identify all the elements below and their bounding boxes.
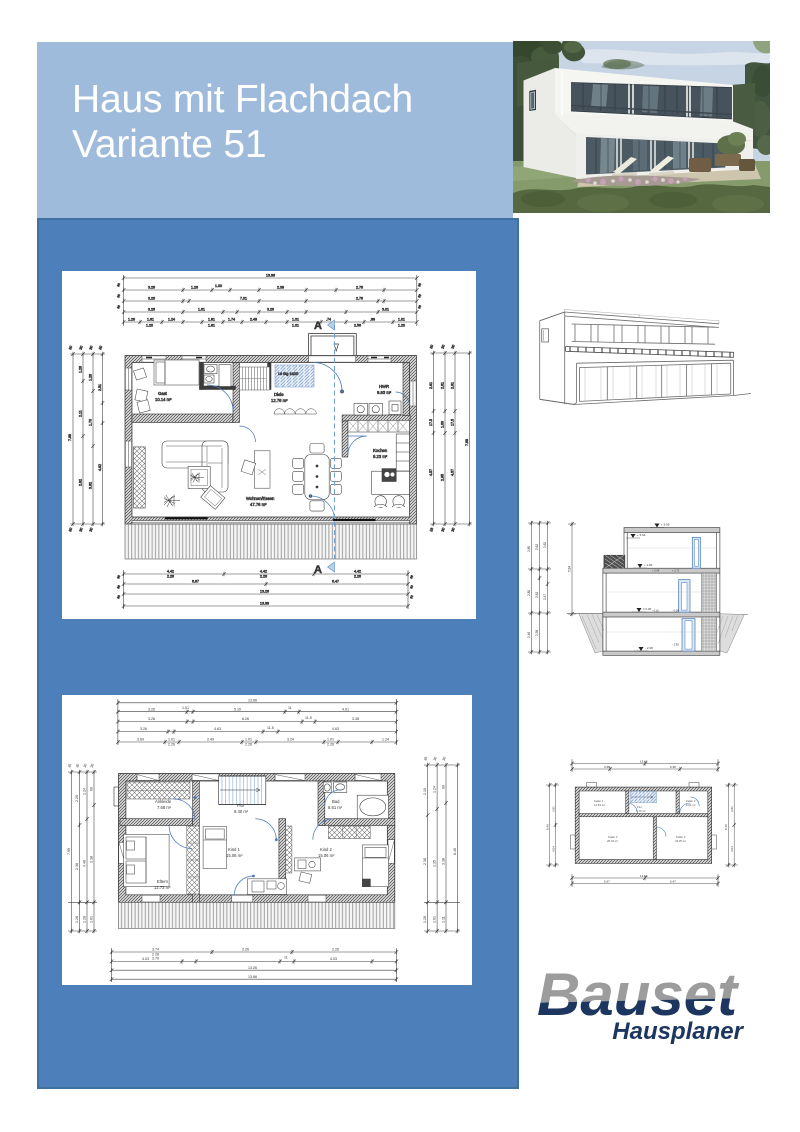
svg-text:30: 30 <box>441 527 446 532</box>
svg-text:1.60: 1.60 <box>441 421 445 428</box>
svg-text:28.02 m²: 28.02 m² <box>607 839 618 843</box>
svg-text:3.38: 3.38 <box>352 717 359 721</box>
svg-text:3.38: 3.38 <box>90 856 94 863</box>
svg-text:+ 2.64: + 2.64 <box>652 569 660 573</box>
svg-text:15.06 m²: 15.06 m² <box>226 853 243 858</box>
svg-text:30: 30 <box>98 345 103 350</box>
svg-text:2.80: 2.80 <box>527 546 531 552</box>
svg-text:2.56: 2.56 <box>354 323 361 327</box>
svg-text:- 2.58: - 2.58 <box>672 643 679 647</box>
svg-text:2.80: 2.80 <box>527 590 531 596</box>
svg-text:17.5: 17.5 <box>451 419 455 426</box>
svg-text:2.26: 2.26 <box>260 574 267 578</box>
svg-text:30: 30 <box>451 344 456 349</box>
svg-text:13.26: 13.26 <box>260 590 269 594</box>
svg-text:36: 36 <box>116 594 121 599</box>
svg-text:3.26: 3.26 <box>148 286 155 290</box>
svg-text:1.28: 1.28 <box>75 916 79 923</box>
svg-text:60: 60 <box>90 787 94 791</box>
svg-text:11: 11 <box>288 706 292 710</box>
svg-text:8.46: 8.46 <box>545 824 549 830</box>
svg-text:13.66: 13.66 <box>640 874 648 878</box>
svg-text:9.40 m²: 9.40 m² <box>234 809 249 814</box>
svg-text:4.42: 4.42 <box>260 570 267 574</box>
svg-text:Wohnen/Essen: Wohnen/Essen <box>246 496 275 501</box>
svg-text:1.24: 1.24 <box>382 738 389 742</box>
svg-text:17.5: 17.5 <box>429 419 433 426</box>
svg-text:30: 30 <box>83 763 88 768</box>
svg-text:5.10: 5.10 <box>234 707 241 711</box>
svg-text:4.04: 4.04 <box>551 846 555 852</box>
svg-text:+ 2.84: + 2.84 <box>644 563 653 567</box>
svg-text:1.24: 1.24 <box>433 786 437 793</box>
svg-text:3.24: 3.24 <box>287 738 294 742</box>
svg-text:1.11: 1.11 <box>442 916 446 923</box>
svg-text:2.26: 2.26 <box>75 795 79 802</box>
svg-text:60: 60 <box>442 785 446 789</box>
svg-text:2.26: 2.26 <box>168 742 175 746</box>
svg-text:1.26: 1.26 <box>79 366 83 373</box>
svg-text:30: 30 <box>79 527 84 532</box>
svg-text:11.5: 11.5 <box>267 726 274 730</box>
svg-text:3.26: 3.26 <box>267 308 274 312</box>
svg-text:6.67: 6.67 <box>604 879 610 883</box>
svg-text:2.61: 2.61 <box>429 382 433 389</box>
svg-text:Gast: Gast <box>158 391 168 396</box>
svg-text:10.14 m²: 10.14 m² <box>155 397 172 402</box>
svg-text:1.74: 1.74 <box>228 318 235 322</box>
svg-text:Eltern: Eltern <box>157 879 169 884</box>
svg-text:2.38: 2.38 <box>423 858 427 865</box>
svg-text:12.76 m²: 12.76 m² <box>271 398 288 403</box>
svg-text:3.26: 3.26 <box>148 308 155 312</box>
svg-text:30: 30 <box>429 344 434 349</box>
svg-text:36: 36 <box>116 304 121 309</box>
svg-text:1.61: 1.61 <box>198 308 205 312</box>
svg-text:6.67: 6.67 <box>192 580 199 584</box>
svg-text:6.47: 6.47 <box>332 580 339 584</box>
svg-text:1.01: 1.01 <box>327 738 334 742</box>
svg-text:14.81 m²: 14.81 m² <box>594 803 605 807</box>
svg-text:36: 36 <box>67 763 72 768</box>
svg-text:8.46: 8.46 <box>724 824 728 830</box>
svg-text:4.03: 4.03 <box>330 957 337 961</box>
svg-text:2.92: 2.92 <box>79 479 83 486</box>
svg-text:- 0.08: - 0.08 <box>672 609 679 613</box>
svg-text:Bad: Bad <box>332 799 340 804</box>
svg-text:1.01: 1.01 <box>292 323 299 327</box>
svg-text:1.01: 1.01 <box>398 318 405 322</box>
svg-text:2.76: 2.76 <box>356 297 363 301</box>
svg-text:1.24: 1.24 <box>83 788 87 795</box>
svg-text:Flur: Flur <box>237 803 245 808</box>
svg-text:.99: .99 <box>370 318 375 322</box>
svg-text:24.35 m²: 24.35 m² <box>675 839 686 843</box>
svg-text:2.51: 2.51 <box>98 384 102 391</box>
svg-text:36: 36 <box>417 282 422 287</box>
svg-text:8.61 m²: 8.61 m² <box>686 803 696 807</box>
svg-text:2.26: 2.26 <box>245 742 252 746</box>
svg-text:2.49: 2.49 <box>250 318 257 322</box>
svg-text:± 0.00: ± 0.00 <box>643 607 652 611</box>
svg-text:1.81: 1.81 <box>208 318 215 322</box>
svg-text:13.99: 13.99 <box>266 274 275 278</box>
svg-text:36: 36 <box>116 574 121 579</box>
svg-text:2.26: 2.26 <box>242 948 249 952</box>
svg-text:1.28: 1.28 <box>83 916 87 923</box>
svg-text:4.04: 4.04 <box>730 846 734 852</box>
svg-text:3.26: 3.26 <box>148 717 155 721</box>
svg-text:1.26: 1.26 <box>89 374 93 381</box>
svg-text:12.73 m²: 12.73 m² <box>154 885 171 890</box>
svg-text:30: 30 <box>75 763 80 768</box>
svg-text:7.68 m²: 7.68 m² <box>157 805 172 810</box>
svg-text:13.66: 13.66 <box>640 759 648 763</box>
svg-text:1.28: 1.28 <box>423 916 427 923</box>
svg-text:1.01: 1.01 <box>168 738 175 742</box>
svg-text:A: A <box>314 320 322 332</box>
svg-text:1.01: 1.01 <box>433 916 437 923</box>
svg-text:11: 11 <box>284 956 288 960</box>
svg-text:30: 30 <box>409 584 414 589</box>
svg-text:2.76: 2.76 <box>356 286 363 290</box>
svg-text:1.01: 1.01 <box>182 706 189 710</box>
svg-text:1.35: 1.35 <box>433 860 437 867</box>
svg-text:6.38: 6.38 <box>604 765 610 769</box>
svg-text:1.81: 1.81 <box>208 323 215 327</box>
svg-text:30: 30 <box>90 763 95 768</box>
svg-text:9.23 m²: 9.23 m² <box>373 454 388 459</box>
svg-text:3.01: 3.01 <box>382 308 389 312</box>
svg-text:1.20: 1.20 <box>398 323 405 327</box>
svg-text:5.70 m²: 5.70 m² <box>636 809 646 813</box>
svg-text:2.26: 2.26 <box>327 742 334 746</box>
svg-text:2.26: 2.26 <box>332 948 339 952</box>
svg-text:HWR: HWR <box>379 384 389 389</box>
svg-text:1.01: 1.01 <box>90 916 94 923</box>
svg-text:1.26: 1.26 <box>191 286 198 290</box>
svg-text:+ 5.95: + 5.95 <box>661 523 670 527</box>
svg-text:4.03: 4.03 <box>142 957 149 961</box>
svg-text:30: 30 <box>409 594 414 599</box>
svg-text:8.61 m²: 8.61 m² <box>328 805 343 810</box>
svg-text:36: 36 <box>116 282 121 287</box>
svg-text:Kind 2: Kind 2 <box>320 847 333 852</box>
svg-text:36: 36 <box>116 584 121 589</box>
svg-text:2.11: 2.11 <box>79 410 83 417</box>
svg-text:4.57: 4.57 <box>451 469 455 476</box>
svg-text:36: 36 <box>409 574 414 579</box>
svg-text:1.81: 1.81 <box>147 318 154 322</box>
svg-text:6.26: 6.26 <box>242 717 249 721</box>
svg-text:+ 2.72: + 2.72 <box>672 569 680 573</box>
svg-text:6.38: 6.38 <box>670 765 676 769</box>
svg-text:30: 30 <box>441 344 446 349</box>
svg-text:30: 30 <box>433 756 438 761</box>
svg-text:3.38: 3.38 <box>442 858 446 865</box>
svg-text:2.38: 2.38 <box>75 863 79 870</box>
svg-text:47.76 m²: 47.76 m² <box>250 502 267 507</box>
svg-text:2.38: 2.38 <box>535 630 539 636</box>
svg-text:3.81: 3.81 <box>551 806 555 812</box>
svg-text:2.62: 2.62 <box>535 592 539 598</box>
svg-text:3.26: 3.26 <box>148 707 155 711</box>
svg-text:4.57: 4.57 <box>429 469 433 476</box>
svg-text:- 0.16: - 0.16 <box>652 609 659 613</box>
svg-text:2.62: 2.62 <box>543 542 547 548</box>
svg-text:4.63: 4.63 <box>332 727 339 731</box>
svg-text:7.99: 7.99 <box>67 848 71 855</box>
svg-text:3.26: 3.26 <box>140 727 147 731</box>
svg-text:2.61: 2.61 <box>451 382 455 389</box>
svg-text:9.93 m²: 9.93 m² <box>377 390 392 395</box>
svg-text:.74: .74 <box>326 318 331 322</box>
svg-text:30: 30 <box>442 756 447 761</box>
svg-text:1.26: 1.26 <box>128 318 135 322</box>
svg-text:2.26: 2.26 <box>167 574 174 578</box>
svg-text:3.81: 3.81 <box>730 806 734 812</box>
svg-text:2.62: 2.62 <box>535 544 539 550</box>
svg-text:36: 36 <box>417 304 422 309</box>
svg-text:8.46: 8.46 <box>453 848 457 855</box>
svg-text:7.99: 7.99 <box>465 439 469 446</box>
svg-text:Kochen: Kochen <box>373 448 388 453</box>
svg-text:30: 30 <box>89 345 94 350</box>
svg-text:4.42: 4.42 <box>354 570 361 574</box>
svg-text:1.01: 1.01 <box>292 318 299 322</box>
svg-text:30: 30 <box>451 527 456 532</box>
svg-text:11.5: 11.5 <box>305 716 312 720</box>
svg-text:6.47: 6.47 <box>670 879 676 883</box>
svg-text:Ankleide: Ankleide <box>155 799 172 804</box>
svg-text:2.61: 2.61 <box>441 382 445 389</box>
svg-text:30: 30 <box>68 527 73 532</box>
svg-text:2.47: 2.47 <box>543 594 547 600</box>
svg-text:36: 36 <box>417 293 422 298</box>
svg-text:2.49: 2.49 <box>207 738 214 742</box>
svg-text:3.74: 3.74 <box>152 948 159 952</box>
svg-text:36: 36 <box>423 756 428 761</box>
svg-text:2.95: 2.95 <box>441 474 445 481</box>
svg-text:2.39: 2.39 <box>277 286 284 290</box>
svg-text:30: 30 <box>89 527 94 532</box>
svg-text:4.01: 4.01 <box>342 707 349 711</box>
svg-text:36: 36 <box>116 293 121 298</box>
svg-text:13.99: 13.99 <box>260 602 269 606</box>
svg-text:1.70: 1.70 <box>89 419 93 426</box>
svg-text:7.01: 7.01 <box>240 297 247 301</box>
svg-text:13.66: 13.66 <box>248 975 257 979</box>
svg-text:4.42: 4.42 <box>167 570 174 574</box>
svg-text:30: 30 <box>68 345 73 350</box>
svg-text:+ 5.64: + 5.64 <box>637 533 646 537</box>
svg-text:5.84: 5.84 <box>568 566 572 572</box>
svg-text:4.46: 4.46 <box>83 860 87 867</box>
svg-text:13.26: 13.26 <box>248 966 257 970</box>
svg-text:1.20: 1.20 <box>146 323 153 327</box>
svg-text:13.66: 13.66 <box>248 698 257 702</box>
svg-text:1.00: 1.00 <box>215 284 222 288</box>
svg-text:1.01: 1.01 <box>245 738 252 742</box>
svg-text:7.99: 7.99 <box>68 434 72 441</box>
svg-text:3.92: 3.92 <box>89 482 93 489</box>
svg-text:15.06 m²: 15.06 m² <box>318 853 335 858</box>
svg-text:2.10: 2.10 <box>423 788 427 795</box>
svg-text:3.70: 3.70 <box>152 957 159 961</box>
svg-text:- 2.38: - 2.38 <box>645 646 653 650</box>
svg-text:2.46: 2.46 <box>527 632 531 638</box>
svg-text:Diele: Diele <box>274 392 284 397</box>
svg-text:26: 26 <box>429 527 434 532</box>
svg-text:1.24: 1.24 <box>168 318 175 322</box>
svg-text:4.63: 4.63 <box>214 727 221 731</box>
svg-text:Kind 1: Kind 1 <box>228 847 241 852</box>
svg-text:3.69: 3.69 <box>137 738 144 742</box>
svg-text:4.62: 4.62 <box>98 464 102 471</box>
svg-text:2.26: 2.26 <box>354 574 361 578</box>
svg-text:16 Stg 18/25: 16 Stg 18/25 <box>278 372 298 376</box>
svg-text:3.26: 3.26 <box>148 297 155 301</box>
svg-text:A: A <box>314 564 322 576</box>
svg-text:30: 30 <box>79 345 84 350</box>
